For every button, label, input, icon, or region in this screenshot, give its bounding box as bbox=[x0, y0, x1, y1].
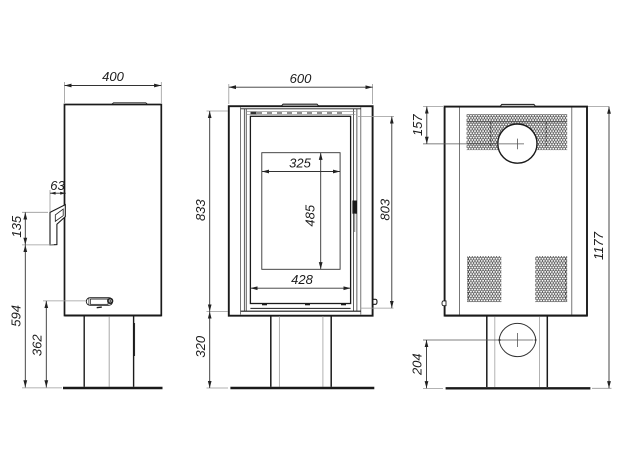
svg-text:135: 135 bbox=[9, 215, 24, 237]
svg-text:204: 204 bbox=[410, 353, 425, 376]
svg-text:1177: 1177 bbox=[591, 231, 606, 260]
svg-text:833: 833 bbox=[193, 199, 208, 221]
svg-text:362: 362 bbox=[29, 334, 44, 356]
svg-text:400: 400 bbox=[102, 69, 124, 84]
svg-text:485: 485 bbox=[302, 204, 317, 226]
svg-text:594: 594 bbox=[8, 305, 23, 327]
svg-text:803: 803 bbox=[377, 198, 392, 220]
svg-text:600: 600 bbox=[290, 71, 312, 86]
svg-text:320: 320 bbox=[193, 335, 208, 357]
svg-text:428: 428 bbox=[291, 272, 313, 287]
svg-text:63: 63 bbox=[50, 178, 65, 193]
svg-text:157: 157 bbox=[410, 114, 425, 136]
svg-text:325: 325 bbox=[289, 156, 311, 171]
